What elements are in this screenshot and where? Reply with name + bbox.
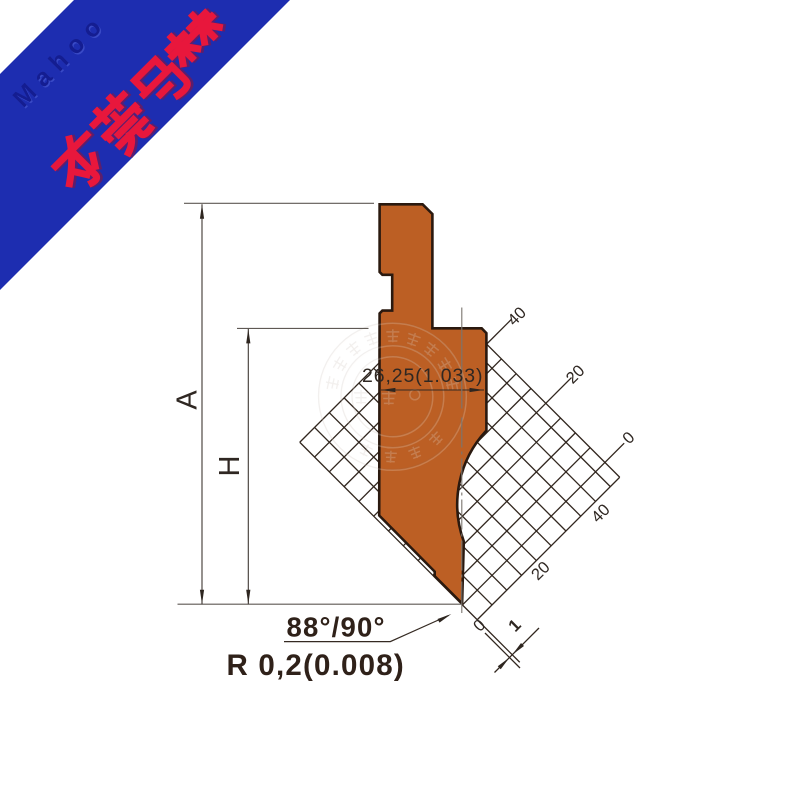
svg-text:88°/90°: 88°/90° (287, 612, 386, 643)
svg-text:R 0,2(0.008): R 0,2(0.008) (227, 649, 405, 682)
svg-text:A: A (172, 390, 204, 410)
svg-text:H: H (214, 456, 246, 477)
svg-text:26,25(1.033): 26,25(1.033) (362, 365, 483, 387)
